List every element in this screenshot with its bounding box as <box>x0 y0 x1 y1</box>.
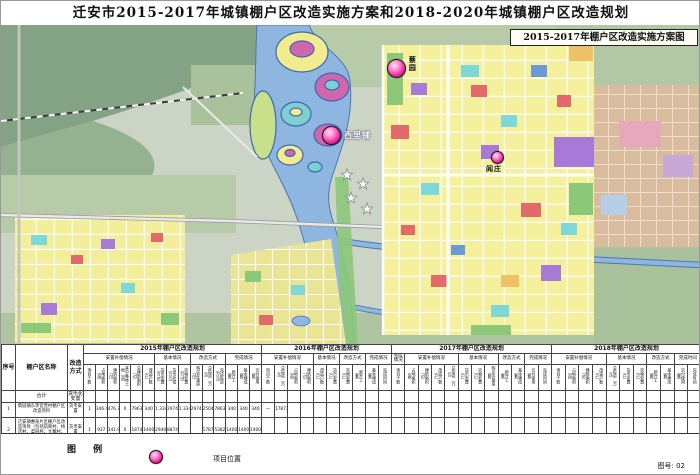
row-value <box>405 403 418 418</box>
row-value: 25049 <box>202 403 214 418</box>
row-mode: 货币安置 <box>68 403 84 418</box>
row-value <box>326 418 339 434</box>
leaf-header: 新开工（套） <box>647 365 661 391</box>
row-value <box>674 391 688 403</box>
subgroup-header: 改造方式 <box>647 354 674 365</box>
row-seq <box>2 391 16 403</box>
row-value <box>498 391 511 403</box>
row-value <box>512 418 525 434</box>
row-value: 340 <box>250 403 262 418</box>
row-value <box>214 391 226 403</box>
row-value <box>552 418 566 434</box>
leaf-header: 占地面积（亩） <box>287 365 300 391</box>
leaf-header: 完成时间 <box>688 365 700 391</box>
row-value <box>261 418 274 434</box>
row-value <box>538 403 551 418</box>
row-value <box>313 403 326 418</box>
row-value <box>565 391 579 403</box>
leaf-header: 改造户数（户） <box>432 365 445 391</box>
row-value <box>418 418 431 434</box>
row-value <box>84 391 96 403</box>
leaf-header: 改造户数（户） <box>592 365 606 391</box>
row-value <box>378 391 391 403</box>
project-marker-xilipu <box>322 126 341 145</box>
leaf-header: 交付使用（套） <box>525 365 538 391</box>
row-value: 5382.07 <box>214 418 226 434</box>
marker-label-yanzhuang: 阎庄 <box>486 166 502 173</box>
row-value <box>178 418 190 434</box>
subgroup-header: 完成情况 <box>365 354 391 365</box>
row-value: 79633 <box>131 403 143 418</box>
sheet-number: 图号: 02 <box>658 461 686 471</box>
leaf-header: 其中集体土地（亩） <box>119 365 131 391</box>
row-value: 340 <box>143 403 155 418</box>
subgroup-header: 安置补偿情况 <box>261 354 313 365</box>
subgroup-header: 基本情况 <box>313 354 339 365</box>
row-value <box>606 418 620 434</box>
row-value: 1 <box>84 403 96 418</box>
row-value <box>392 418 405 434</box>
col-header-name: 棚户区名称 <box>16 345 68 391</box>
plan-sheet: 迁安市2015-2017年城镇棚户区改造实施方案和2018-2020年城镇棚户区… <box>0 0 700 475</box>
row-value: 476.7 <box>107 403 119 418</box>
row-value: 29745 <box>167 403 179 418</box>
row-value <box>339 391 352 403</box>
leaf-header: 货币安置（万㎡） <box>155 365 167 391</box>
legend-item-label: 项目位置 <box>213 454 241 464</box>
row-value <box>538 391 551 403</box>
row-value: — <box>261 403 274 418</box>
row-value <box>378 418 391 434</box>
leaf-header: 基本建成（套） <box>238 365 250 391</box>
row-value <box>579 418 593 434</box>
row-value <box>552 391 566 403</box>
project-marker-yanzhuang <box>491 151 504 164</box>
leaf-header: 建筑面积（㎡） <box>300 365 313 391</box>
row-value <box>512 391 525 403</box>
row-value <box>485 418 498 434</box>
subgroup-header: 完成情况 <box>226 354 262 365</box>
row-value <box>274 418 287 434</box>
row-value <box>178 391 190 403</box>
leaf-header: 项目个数 <box>392 365 405 391</box>
row-value <box>647 418 661 434</box>
leaf-header: 购买存量房（套） <box>485 365 498 391</box>
row-value: 17873 <box>274 403 287 418</box>
row-value <box>365 391 378 403</box>
row-value <box>633 403 647 418</box>
leaf-header: 基本建成（套） <box>512 365 525 391</box>
subgroup-header: 改造方式 <box>498 354 525 365</box>
row-value <box>445 391 458 403</box>
row-value <box>339 418 352 434</box>
row-value <box>418 403 431 418</box>
leaf-header: 总投资（万元） <box>445 365 458 391</box>
subgroup-header: 基本情况 <box>606 354 647 365</box>
subgroup-header: 改造方式 <box>190 354 226 365</box>
leaf-header: 完成投资（万元） <box>214 365 226 391</box>
leaf-header: 总投资（万元） <box>202 365 214 391</box>
row-value: 1.334 <box>155 403 167 418</box>
row-value <box>579 403 593 418</box>
row-value: 1400 <box>226 418 238 434</box>
year-group-header-0: 2015年棚户区改造规划 <box>84 345 262 354</box>
row-value <box>688 418 700 434</box>
leaf-header: 货币安置（户） <box>458 365 471 391</box>
map-inset-title: 2015-2017年棚户区改造实施方案图 <box>510 29 698 46</box>
row-value <box>498 418 511 434</box>
row-value <box>352 403 365 418</box>
leaf-header: 占地面积（亩） <box>95 365 107 391</box>
row-value <box>661 418 675 434</box>
row-name: 蔡园镇东李官营村棚户区改造项目 <box>16 403 68 418</box>
leaf-header: 改造户数（户） <box>313 365 326 391</box>
row-value <box>287 418 300 434</box>
row-value: 2940 <box>155 418 167 434</box>
row-value <box>620 391 634 403</box>
row-value <box>485 391 498 403</box>
row-value <box>688 391 700 403</box>
row-value <box>287 403 300 418</box>
row-value <box>432 391 445 403</box>
leaf-header: 新开工（套） <box>498 365 511 391</box>
row-value <box>661 403 675 418</box>
center-urban-grid <box>231 239 346 344</box>
renovation-plan-table: 序号棚户区名称改造方式2015年棚户区改造规划2016年棚户区改造规划2017年… <box>1 344 700 433</box>
row-value <box>688 403 700 418</box>
row-value <box>287 391 300 403</box>
row-value <box>190 418 202 434</box>
marker-label-xilipu: 西里铺 <box>344 132 371 140</box>
row-value <box>674 403 688 418</box>
row-value <box>392 391 405 403</box>
row-name: 合计 <box>16 391 68 403</box>
leaf-header: 实物安置（户） <box>339 365 352 391</box>
row-mode: 货币安置 <box>68 418 84 434</box>
row-value <box>432 403 445 418</box>
row-value <box>458 418 471 434</box>
leaf-header: 项目个数 <box>84 365 96 391</box>
row-value <box>592 403 606 418</box>
row-value <box>606 403 620 418</box>
page-title: 迁安市2015-2017年城镇棚户区改造实施方案和2018-2020年城镇棚户区… <box>1 1 700 25</box>
subgroup-header: 安置补偿情况 <box>84 354 155 365</box>
row-value <box>131 391 143 403</box>
row-value: 0 <box>119 418 131 434</box>
row-value <box>405 391 418 403</box>
row-value: 78633 <box>214 403 226 418</box>
year-group-header-2: 2017年棚户区改造规划 <box>392 345 552 354</box>
row-value: 1400 <box>238 418 250 434</box>
row-value <box>326 403 339 418</box>
row-value <box>95 391 107 403</box>
row-value <box>620 418 634 434</box>
row-value: 340 <box>238 403 250 418</box>
row-value <box>498 403 511 418</box>
row-value <box>432 418 445 434</box>
row-value: 341.9 <box>107 418 119 434</box>
project-marker-caiyuan <box>387 59 406 78</box>
leaf-header: 总投资（万元） <box>274 365 287 391</box>
project-location-marker-icon <box>149 450 163 464</box>
row-value <box>378 403 391 418</box>
row-value <box>472 403 485 418</box>
row-value <box>418 391 431 403</box>
row-value <box>274 391 287 403</box>
leaf-header: 实物安置（万㎡） <box>178 365 190 391</box>
row-value <box>472 391 485 403</box>
row-value <box>119 391 131 403</box>
row-value <box>674 418 688 434</box>
row-value <box>226 391 238 403</box>
row-seq: 2 <box>2 418 16 434</box>
row-seq: 1 <box>2 403 16 418</box>
leaf-header: 占地面积（亩） <box>405 365 418 391</box>
leaf-header: 完成时间 <box>538 365 551 391</box>
row-value <box>313 391 326 403</box>
leaf-header: 交付使用（套） <box>250 365 262 391</box>
row-value <box>458 403 471 418</box>
row-value <box>300 403 313 418</box>
leaf-header: 项目个数 <box>552 365 566 391</box>
legend-bar: 图 例 项目位置 图号: 02 <box>1 433 700 475</box>
subgroup-header: 基本情况 <box>155 354 191 365</box>
row-value <box>525 403 538 418</box>
leaf-header: 货币安置（户） <box>620 365 634 391</box>
row-value <box>326 391 339 403</box>
row-value <box>538 418 551 434</box>
row-value <box>365 403 378 418</box>
row-value <box>300 418 313 434</box>
row-value <box>238 391 250 403</box>
legend-title: 图 例 <box>67 442 109 455</box>
leaf-header: 基本建成（套） <box>365 365 378 391</box>
row-value <box>300 391 313 403</box>
row-name: 迁安镇惠泉片区棚户区改造项目（包括前窝村、杨店村、菜园村、大寨村、人民楼等） <box>16 418 68 434</box>
row-value <box>661 391 675 403</box>
row-value <box>579 391 593 403</box>
row-value <box>405 418 418 434</box>
row-value: 346.4 <box>95 403 107 418</box>
row-value <box>365 418 378 434</box>
row-value: 17873 <box>202 418 214 434</box>
row-value <box>392 403 405 418</box>
leaf-header: 购买存量房（㎡） <box>190 365 202 391</box>
leaf-header: 实物安置（户） <box>472 365 485 391</box>
row-value <box>647 403 661 418</box>
row-value <box>565 403 579 418</box>
col-header-seq: 序号 <box>2 345 16 391</box>
subgroup-header: 安置补偿情况 <box>405 354 458 365</box>
row-value <box>606 391 620 403</box>
leaf-header: 实物安置（户） <box>633 365 647 391</box>
row-mode: 货币化安置 <box>68 391 84 403</box>
row-value <box>592 391 606 403</box>
row-value: 1.334 <box>178 403 190 418</box>
row-value: 29745 <box>190 403 202 418</box>
leaf-header: 建筑面积（㎡） <box>579 365 593 391</box>
subgroup-header: 改造方式 <box>339 354 365 365</box>
row-value <box>620 403 634 418</box>
table-row: 1蔡园镇东李官营村棚户区改造项目货币安置1346.4476.7079633340… <box>2 403 700 418</box>
map-canvas <box>1 25 700 344</box>
leaf-header: 总投资（万元） <box>606 365 620 391</box>
row-value <box>155 391 167 403</box>
table-row: 2迁安镇惠泉片区棚户区改造项目（包括前窝村、杨店村、菜园村、大寨村、人民楼等）货… <box>2 418 700 434</box>
leaf-header: 占地面积（亩） <box>565 365 579 391</box>
row-value <box>167 391 179 403</box>
leaf-header: 建筑面积（㎡） <box>107 365 119 391</box>
leaf-header: 货币安置（户） <box>326 365 339 391</box>
row-value: 18745 <box>131 418 143 434</box>
row-value <box>472 418 485 434</box>
row-value <box>190 391 202 403</box>
row-value: 0 <box>119 403 131 418</box>
row-value <box>633 418 647 434</box>
row-value <box>250 391 262 403</box>
row-value: 1400 <box>143 418 155 434</box>
leaf-header: 改造户数（户） <box>143 365 155 391</box>
year-group-header-1: 2016年棚户区改造规划 <box>261 345 391 354</box>
row-value <box>339 403 352 418</box>
row-value <box>485 403 498 418</box>
row-value: 88745 <box>167 418 179 434</box>
subgroup-header: 完成情况 <box>525 354 552 365</box>
row-value <box>445 403 458 418</box>
row-value <box>313 418 326 434</box>
row-value <box>143 391 155 403</box>
row-value <box>458 391 471 403</box>
marker-label-caiyuan: 蔡园 <box>408 56 415 72</box>
row-value <box>525 418 538 434</box>
city-map: 2015-2017年棚户区改造实施方案图 蔡园 西里铺 阎庄 <box>1 25 700 344</box>
row-value <box>633 391 647 403</box>
subgroup-header: 完成情况 <box>392 354 405 365</box>
year-group-header-3: 2018年棚户区改造规划 <box>552 345 700 354</box>
leaf-header: 货币补偿（万元） <box>167 365 179 391</box>
leaf-header: 建筑面积（㎡） <box>418 365 431 391</box>
leaf-header: 基本建成（套） <box>661 365 675 391</box>
row-value: 937 <box>95 418 107 434</box>
subgroup-header: 完成时间 <box>674 354 700 365</box>
row-value <box>352 418 365 434</box>
row-value <box>107 391 119 403</box>
leaf-header: 新开工（套） <box>226 365 238 391</box>
row-value: 1 <box>84 418 96 434</box>
row-value <box>352 391 365 403</box>
table-row: 合计货币化安置 <box>2 391 700 403</box>
row-value: 340 <box>226 403 238 418</box>
row-value <box>261 391 274 403</box>
row-value: 1400 <box>250 418 262 434</box>
renovation-table: 序号棚户区名称改造方式2015年棚户区改造规划2016年棚户区改造规划2017年… <box>1 344 700 433</box>
row-value <box>592 418 606 434</box>
row-value <box>445 418 458 434</box>
leaf-header: 新开工（套） <box>352 365 365 391</box>
subgroup-header: 安置补偿情况 <box>552 354 607 365</box>
leaf-header: 完成时间 <box>378 365 391 391</box>
leaf-header: 总建筑面积（㎡） <box>131 365 143 391</box>
row-value <box>525 391 538 403</box>
leaf-header: 项目个数 <box>261 365 274 391</box>
leaf-header: 交付使用（套） <box>674 365 688 391</box>
row-value <box>552 403 566 418</box>
row-value <box>512 403 525 418</box>
row-value <box>202 391 214 403</box>
subgroup-header: 基本情况 <box>458 354 498 365</box>
col-header-mode: 改造方式 <box>68 345 84 391</box>
row-value <box>565 418 579 434</box>
row-value <box>647 391 661 403</box>
